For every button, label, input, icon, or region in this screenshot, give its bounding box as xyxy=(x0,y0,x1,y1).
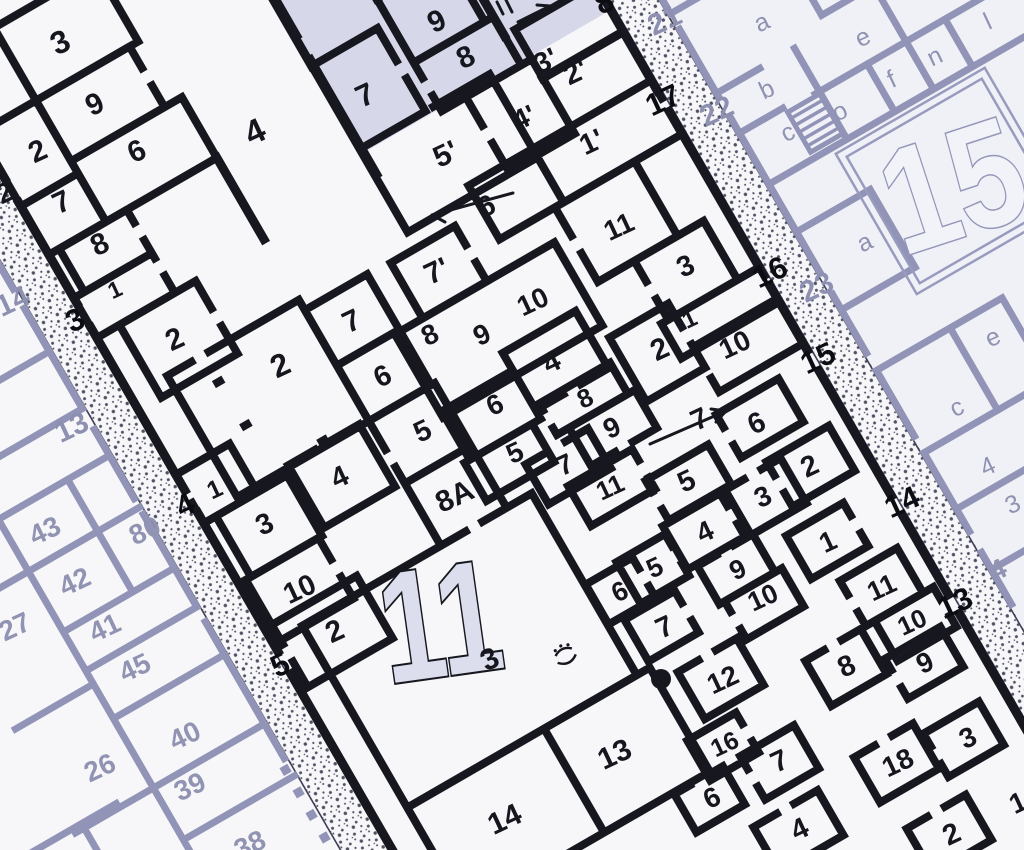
column-dot xyxy=(651,669,671,689)
plan-walls-layer: 15 11 xyxy=(0,0,1024,850)
fountain-symbol xyxy=(551,640,578,667)
site-plan-canvas: 15 11 xyxy=(0,0,1024,850)
insula-11-number: 11 xyxy=(369,526,512,717)
